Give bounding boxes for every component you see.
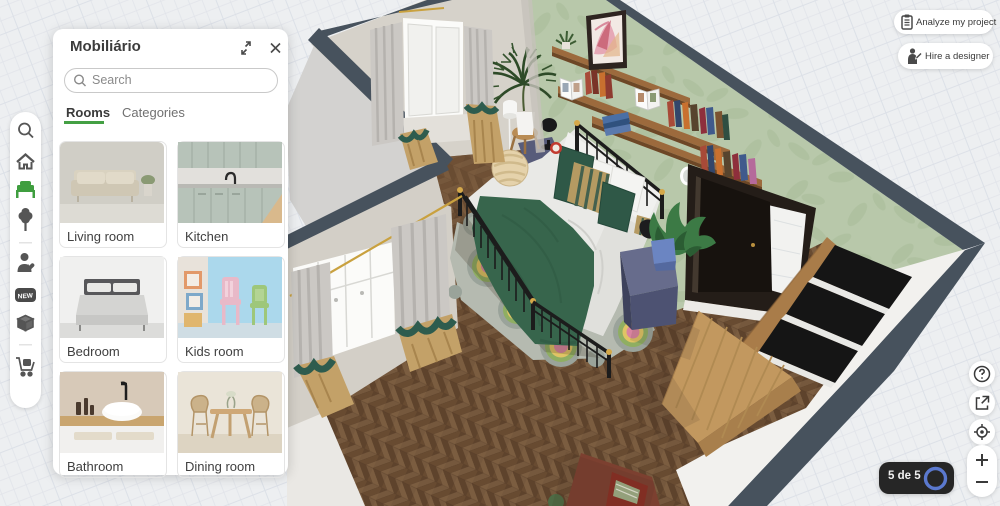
- svg-text:NEW: NEW: [18, 292, 34, 300]
